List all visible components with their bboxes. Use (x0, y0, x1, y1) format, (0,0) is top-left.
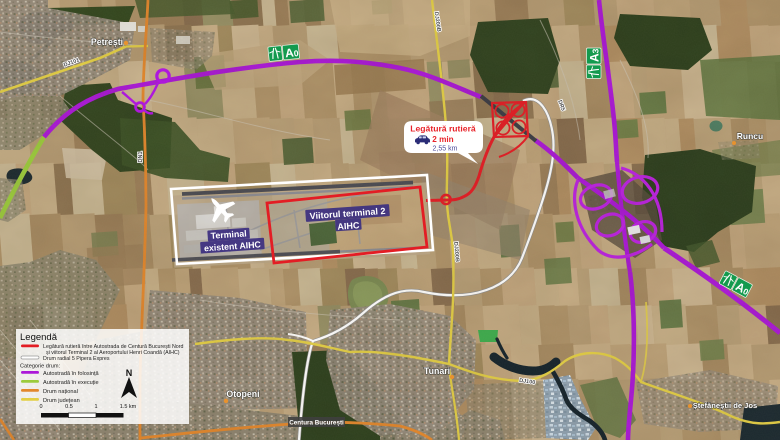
svg-text:Petrești: Petrești (91, 37, 123, 47)
svg-text:Drum județean: Drum județean (43, 398, 80, 404)
svg-text:Drum radial 5 Pipera Expres: Drum radial 5 Pipera Expres (43, 356, 110, 362)
svg-text:Legendă: Legendă (20, 332, 58, 343)
svg-text:Runcu: Runcu (737, 131, 763, 141)
svg-text:Tunari: Tunari (424, 366, 450, 376)
svg-text:0.5: 0.5 (65, 404, 73, 410)
svg-text:Autostradă în execuție: Autostradă în execuție (43, 380, 99, 386)
svg-text:2 min: 2 min (432, 135, 453, 144)
svg-text:Autostradă în folosință: Autostradă în folosință (43, 371, 100, 377)
svg-text:Drum național: Drum național (43, 389, 78, 395)
svg-text:DN1: DN1 (138, 151, 144, 162)
svg-text:1: 1 (94, 404, 97, 410)
svg-text:A3: A3 (588, 48, 602, 62)
svg-text:AIHC: AIHC (337, 220, 360, 232)
svg-text:2,55 km: 2,55 km (433, 146, 458, 153)
svg-text:0: 0 (39, 404, 42, 410)
svg-text:Ștefăneștii de Jos: Ștefăneștii de Jos (693, 401, 758, 410)
svg-text:Centura București: Centura București (289, 419, 344, 426)
svg-text:Otopeni: Otopeni (226, 389, 259, 399)
svg-text:N: N (126, 368, 133, 378)
svg-text:1.5 km: 1.5 km (120, 404, 137, 410)
svg-text:Categorie drum:: Categorie drum: (20, 364, 61, 370)
svg-text:Legătură rutieră: Legătură rutieră (410, 124, 476, 134)
svg-text:A0: A0 (284, 45, 299, 60)
